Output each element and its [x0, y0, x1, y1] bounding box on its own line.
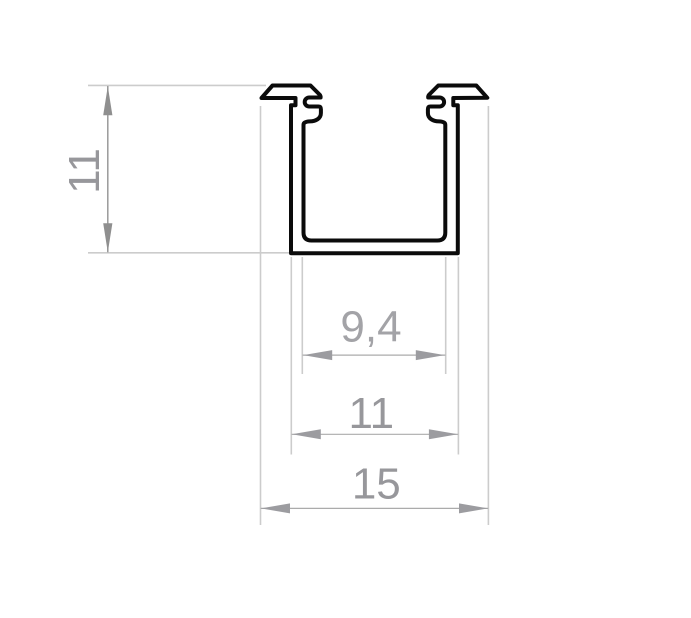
- svg-text:11: 11: [60, 148, 109, 194]
- svg-text:15: 15: [352, 459, 401, 508]
- svg-text:11: 11: [348, 389, 394, 438]
- svg-text:9,4: 9,4: [340, 303, 401, 352]
